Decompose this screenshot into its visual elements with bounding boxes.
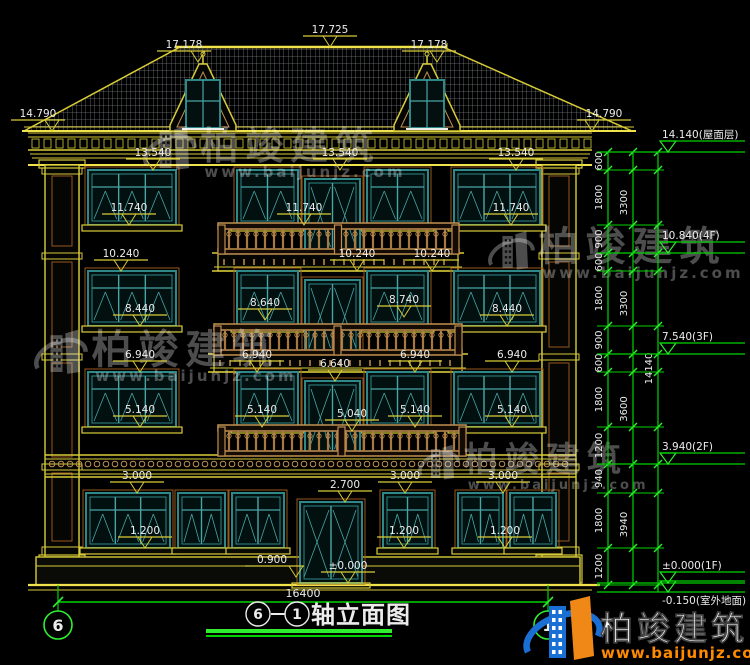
svg-text:8.640: 8.640 (250, 297, 280, 309)
svg-text:1800: 1800 (594, 387, 605, 412)
svg-text:1200: 1200 (594, 433, 605, 458)
svg-text:17.725: 17.725 (312, 24, 349, 36)
svg-text:3.000: 3.000 (390, 470, 420, 482)
axis-bubble-6: 6 (44, 611, 72, 639)
window (175, 490, 228, 551)
cad-canvas: 柏竣建筑www.baijunjz.com柏竣建筑www.baijunjz.com… (0, 0, 750, 665)
svg-text:1800: 1800 (594, 185, 605, 210)
svg-text:11.740: 11.740 (111, 202, 148, 214)
window-sill (172, 548, 231, 554)
svg-text:16400: 16400 (286, 587, 321, 600)
svg-text:14.790: 14.790 (586, 108, 623, 120)
svg-text:6.940: 6.940 (497, 349, 527, 361)
svg-text:柏竣建筑: 柏竣建筑 (200, 124, 380, 168)
svg-text:7.540(3F): 7.540(3F) (662, 331, 713, 343)
window-sill (377, 548, 438, 554)
svg-text:900: 900 (594, 330, 605, 349)
svg-text:10.240: 10.240 (103, 248, 140, 260)
svg-text:5.140: 5.140 (247, 404, 277, 416)
svg-text:17.178: 17.178 (166, 39, 203, 51)
svg-text:±0.000: ±0.000 (329, 560, 368, 572)
window (85, 268, 179, 329)
svg-text:1.200: 1.200 (389, 525, 419, 537)
svg-text:www.baijunjz.com: www.baijunjz.com (204, 163, 405, 181)
window-sill (452, 548, 509, 554)
window (83, 490, 173, 551)
svg-text:3300: 3300 (619, 291, 630, 316)
svg-text:1.200: 1.200 (490, 525, 520, 537)
window (451, 369, 543, 430)
svg-text:14.790: 14.790 (20, 108, 57, 120)
svg-text:1: 1 (292, 607, 302, 623)
dormer-window (406, 80, 448, 129)
svg-text:www.baijunjz.com: www.baijunjz.com (95, 367, 296, 385)
svg-text:5.140: 5.140 (125, 404, 155, 416)
window (507, 490, 559, 551)
svg-text:13.540: 13.540 (135, 147, 172, 159)
svg-text:5.140: 5.140 (400, 404, 430, 416)
svg-text:8.440: 8.440 (492, 303, 522, 315)
svg-text:6.940: 6.940 (400, 349, 430, 361)
svg-text:3600: 3600 (619, 396, 630, 421)
dormer-window (182, 80, 224, 129)
svg-text:600: 600 (594, 353, 605, 372)
svg-text:0.900: 0.900 (257, 554, 287, 566)
window (364, 369, 431, 430)
svg-text:2.700: 2.700 (330, 479, 360, 491)
svg-text:600: 600 (594, 151, 605, 170)
svg-text:柏竣建筑: 柏竣建筑 (600, 609, 748, 648)
svg-text:11.740: 11.740 (493, 202, 530, 214)
svg-text:6.940: 6.940 (125, 349, 155, 361)
svg-text:13.540: 13.540 (322, 147, 359, 159)
svg-text:5.140: 5.140 (497, 404, 527, 416)
svg-text:3.940(2F): 3.940(2F) (662, 441, 713, 453)
svg-text:轴立面图: 轴立面图 (311, 601, 411, 629)
svg-text:3.000: 3.000 (122, 470, 152, 482)
svg-text:11.740: 11.740 (286, 202, 323, 214)
svg-text:10.240: 10.240 (339, 248, 376, 260)
window-sill (82, 225, 182, 231)
window-sill (82, 427, 182, 433)
window-sill (504, 548, 562, 554)
window (455, 490, 506, 551)
svg-text:10.240: 10.240 (414, 248, 451, 260)
svg-text:17.178: 17.178 (411, 39, 448, 51)
window (451, 167, 543, 228)
svg-text:3300: 3300 (619, 190, 630, 215)
svg-text:8.440: 8.440 (125, 303, 155, 315)
svg-text:1200: 1200 (594, 554, 605, 579)
svg-text:10.840(4F): 10.840(4F) (662, 230, 720, 242)
window-sill (448, 225, 546, 231)
svg-text:www.baijunjz.com: www.baijunjz.com (542, 264, 743, 282)
svg-text:600: 600 (594, 252, 605, 271)
svg-text:6: 6 (52, 616, 63, 635)
window-sill (80, 548, 176, 554)
elevation-drawing: 柏竣建筑www.baijunjz.com柏竣建筑www.baijunjz.com… (0, 0, 750, 665)
svg-text:13.540: 13.540 (498, 147, 535, 159)
svg-text:900: 900 (594, 229, 605, 248)
svg-text:1.200: 1.200 (130, 525, 160, 537)
door (302, 176, 363, 254)
svg-text:5.040: 5.040 (337, 408, 367, 420)
window (451, 268, 543, 329)
svg-text:3940: 3940 (619, 512, 630, 537)
bottom-width-dim: 16400 (286, 587, 321, 600)
svg-text:8.740: 8.740 (389, 294, 419, 306)
svg-text:1800: 1800 (594, 508, 605, 533)
svg-text:-0.150(室外地面): -0.150(室外地面) (662, 594, 746, 607)
svg-text:www.baijunjz.com: www.baijunjz.com (601, 644, 750, 662)
window (229, 490, 287, 551)
svg-text:1800: 1800 (594, 286, 605, 311)
window (85, 167, 179, 228)
svg-text:6.640: 6.640 (320, 358, 350, 370)
svg-text:14.140(屋面层): 14.140(屋面层) (662, 129, 738, 141)
svg-text:940: 940 (594, 469, 605, 488)
svg-text:14140: 14140 (644, 353, 655, 385)
svg-text:3.000: 3.000 (488, 470, 518, 482)
svg-text:6: 6 (253, 607, 263, 623)
svg-text:6.940: 6.940 (242, 349, 272, 361)
svg-text:±0.000(1F): ±0.000(1F) (662, 560, 722, 572)
